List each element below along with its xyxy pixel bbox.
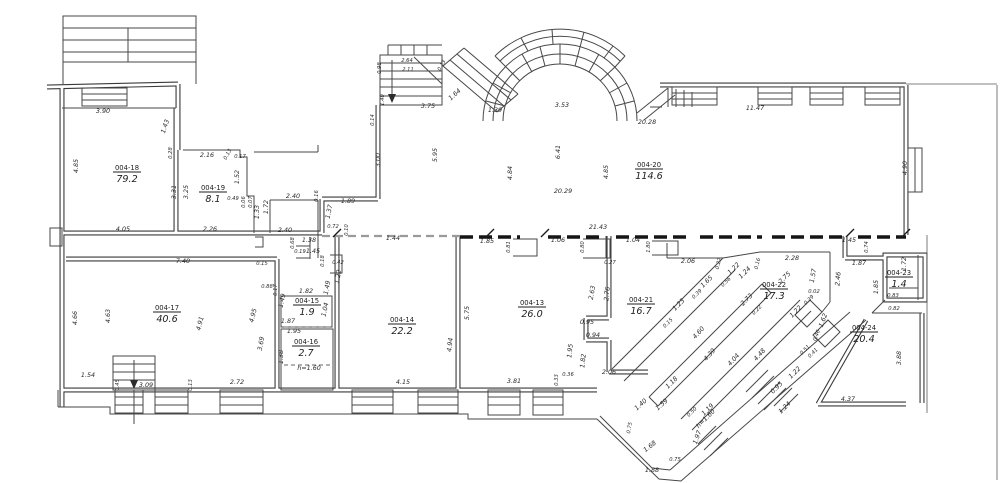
- dimension-label: 3.88: [895, 351, 903, 365]
- dimension-label: 1.37: [324, 204, 335, 220]
- dimension-label: 3.81: [507, 377, 521, 385]
- dimension-label: 0.27: [604, 260, 616, 266]
- room-area: 1.9: [299, 307, 314, 318]
- dimension-label: 1.89: [341, 197, 355, 205]
- dimension-label: 2.76: [602, 286, 611, 301]
- dimension-label: 1.57: [808, 268, 818, 283]
- dimension-label: 1.44: [386, 234, 400, 242]
- dimension-label: 0.72: [327, 224, 339, 230]
- dimension-label: 1.40: [633, 397, 649, 412]
- room-area: 114.6: [635, 171, 662, 182]
- room-code: 004-14: [390, 316, 414, 324]
- dimension-label: 3.90: [96, 107, 110, 115]
- floor-plan-drawing: 004-1879.2004-198.1004-20114.6004-1740.6…: [0, 0, 1000, 483]
- room-label: 004-151.9: [293, 297, 321, 318]
- dimension-label: 1.43: [159, 118, 171, 134]
- dimension-label: 0.33: [554, 374, 560, 386]
- dimension-label: 0.74: [864, 241, 870, 253]
- dimension-label: 2.06: [602, 368, 616, 376]
- dimension-label: 1.80: [646, 241, 652, 253]
- dimension-label: 0.49: [227, 196, 239, 202]
- dimension-label: 6.41: [554, 145, 562, 159]
- room-label: 004-1422.2: [388, 316, 416, 337]
- room-area: 79.2: [116, 174, 137, 185]
- dimension-label: 4.84: [506, 166, 514, 180]
- dimension-label: 0.42: [332, 260, 344, 266]
- dimension-label: 4.60: [691, 325, 706, 341]
- dimension-label: 4.95: [247, 308, 258, 324]
- room-label: 004-1740.6: [153, 304, 181, 325]
- dimension-label: 2.28: [785, 254, 799, 262]
- dimension-label: 1.22: [788, 304, 804, 320]
- dimension-label: 4.85: [72, 159, 80, 173]
- dimension-label: 7.40: [176, 257, 190, 265]
- dimension-label: 0.98: [377, 62, 383, 74]
- dimension-label: 1.95: [565, 343, 574, 358]
- room-code: 004-20: [637, 161, 661, 169]
- dimension-label: 4.37: [841, 395, 855, 403]
- dimension-label: 1.82: [578, 353, 587, 368]
- dimension-label: 21.43: [589, 223, 607, 231]
- dimension-label: 0.19: [294, 249, 306, 255]
- room-code: 004-16: [294, 338, 318, 346]
- room-code: 004-19: [201, 184, 225, 192]
- room-area: 17.3: [763, 291, 784, 302]
- dimension-label: 4.85: [602, 165, 610, 179]
- room-area: 16.7: [630, 306, 652, 317]
- dimension-label: 0.56: [720, 276, 733, 289]
- dimension-label: 0.95: [580, 318, 594, 326]
- dimension-label: 1.22: [787, 365, 803, 381]
- dimension-label: 0.16: [754, 257, 763, 270]
- dimension-label: 1.65: [699, 274, 715, 290]
- dimension-label: 3.00: [374, 153, 382, 167]
- dimension-label: 0.14: [370, 114, 376, 126]
- dimension-label: 4.05: [116, 225, 130, 233]
- dimension-labels: 3.901.434.850.283.314.052.160.130.171.52…: [71, 58, 909, 474]
- room-area: 1.4: [891, 279, 906, 290]
- dimension-label: 1.04: [320, 302, 331, 318]
- dimension-label: 1.95: [287, 327, 301, 335]
- dimension-label: 1.88: [645, 466, 659, 474]
- dimension-label: 0.94: [586, 331, 600, 339]
- dimension-label: 1.85: [872, 280, 880, 294]
- dimension-label: 1.49: [277, 293, 288, 309]
- dimension-label: 0.10: [344, 224, 350, 236]
- dimension-label: 0.13: [188, 379, 194, 391]
- dimension-label: 4.04: [726, 352, 741, 368]
- dimension-label: 0.17: [234, 154, 246, 160]
- dimension-label: 1.23: [671, 297, 687, 313]
- dimension-label: 0.39: [803, 294, 815, 306]
- dimension-label: 1.59: [654, 397, 670, 412]
- room-code: 004-18: [115, 164, 139, 172]
- dimension-label: 1.82: [299, 287, 313, 295]
- dimension-label: 0.46: [812, 329, 822, 343]
- dimension-label: 3.69: [256, 336, 266, 351]
- dimension-label: 0.18: [320, 255, 326, 267]
- room-area: 2.7: [298, 348, 314, 359]
- room-area: 8.1: [205, 194, 220, 205]
- dimension-label: 3.09: [139, 381, 153, 389]
- dimension-label: 0.80: [580, 241, 586, 253]
- dimension-label: 0.36: [562, 372, 574, 378]
- room-code: 004-15: [295, 297, 319, 305]
- dimension-label: 1.40: [380, 94, 386, 106]
- room-code: 004-17: [155, 304, 179, 312]
- dimension-label: 0.75: [626, 421, 634, 434]
- dimension-label: 1.38: [277, 350, 285, 364]
- dimension-label: 1.18: [664, 375, 680, 391]
- dimension-label: 5.95: [431, 148, 439, 162]
- room-area: 22.2: [391, 326, 412, 337]
- dimension-label: 2.16: [200, 151, 214, 159]
- dimension-label: 1.87: [281, 317, 295, 325]
- dimension-label: 2.26: [203, 225, 217, 233]
- dimension-label: 4.90: [901, 161, 909, 175]
- dimension-label: 0.88: [261, 284, 273, 290]
- dimension-label: 3.53: [555, 101, 569, 109]
- dimension-label: 0.16: [314, 190, 320, 202]
- dimension-label: 0.22: [715, 257, 724, 270]
- dimension-label: 4.91: [194, 316, 205, 332]
- dimension-label: 3.25: [182, 185, 190, 199]
- room-label: 004-2420.4: [850, 324, 878, 345]
- dimension-label: 2.46: [833, 271, 842, 286]
- dimension-label: h=1.60: [297, 364, 321, 372]
- room-label: 004-2116.7: [627, 296, 655, 317]
- room-code: 004-21: [629, 296, 653, 304]
- dimension-label: 20.28: [638, 118, 656, 126]
- dimension-label: 2.40: [278, 226, 292, 234]
- dimension-label: 2.75: [777, 270, 793, 286]
- dimension-label: 0.81: [506, 241, 512, 253]
- marked-walls: [284, 229, 910, 365]
- room-label: 004-198.1: [199, 184, 227, 205]
- dimension-label: 1.45: [306, 247, 320, 255]
- dimension-label: 0.50: [686, 406, 699, 419]
- dimension-label: 2.11: [402, 67, 414, 73]
- room-code: 004-13: [520, 299, 544, 307]
- dimension-label: 0.45: [115, 379, 121, 391]
- dimension-label: 2.64: [401, 58, 413, 64]
- dimension-label: 1.22: [333, 269, 343, 284]
- dimension-label: 4.15: [396, 378, 410, 386]
- dimension-label: 4.48: [752, 347, 767, 363]
- walls-inner-faces: [47, 84, 925, 407]
- dimension-label: 2.72: [230, 378, 244, 386]
- dimension-label: 2.63: [587, 285, 597, 300]
- dimension-label: 2.06: [681, 257, 695, 265]
- dimension-label: 0.22: [751, 304, 763, 316]
- dimension-label: 1.33: [253, 205, 261, 219]
- dimension-label: 0.82: [888, 306, 900, 312]
- dimension-label: 0.75: [669, 457, 681, 463]
- dimension-label: 5.75: [463, 306, 471, 320]
- dimension-label: 1.49: [322, 280, 332, 295]
- dimension-label: 1.64: [447, 87, 463, 102]
- dimension-label: 0.39: [691, 288, 703, 300]
- dimension-label: 0.17: [273, 284, 279, 296]
- dimension-label: 1.72: [900, 257, 908, 271]
- dimension-label: 0.28: [168, 147, 174, 159]
- room-label: 004-2217.3: [760, 281, 788, 302]
- dimension-label: 2.40: [286, 192, 300, 200]
- dimension-label: 1.38: [302, 236, 316, 244]
- dimension-label: 1.72: [262, 200, 270, 214]
- room-label: 004-231.4: [885, 269, 913, 290]
- dimension-label: 0.15: [256, 261, 268, 267]
- room-area: 26.0: [521, 309, 542, 320]
- dimension-label: 1.68: [642, 439, 658, 454]
- dimension-label: 1.52: [233, 170, 241, 184]
- room-code: 004-24: [852, 324, 876, 332]
- room-label: 004-162.7: [292, 338, 320, 359]
- dimension-label: 3.31: [170, 185, 178, 199]
- room-label: 004-1326.0: [518, 299, 546, 320]
- dimension-label: 1.39: [488, 106, 502, 114]
- room-label: 004-20114.6: [635, 161, 663, 182]
- dimension-label: 0.06: [241, 196, 247, 208]
- room-area: 40.6: [156, 314, 177, 325]
- dimension-label: 11.47: [746, 104, 764, 112]
- room-label: 004-1879.2: [113, 164, 141, 185]
- dimension-label: 1.04: [626, 236, 640, 244]
- dimension-label: 0.15: [662, 317, 675, 330]
- dimension-label: 3.75: [421, 102, 435, 110]
- dimension-label: 4.63: [104, 309, 112, 323]
- dimension-label: 20.29: [554, 187, 572, 195]
- dimension-label: 4.94: [445, 337, 454, 352]
- dimension-label: 1.06: [551, 236, 565, 244]
- dimension-label: 0.83: [887, 293, 899, 299]
- dimension-label: 1.85: [480, 237, 494, 245]
- dimension-label: 4.66: [71, 311, 79, 325]
- dimension-label: 0.13: [437, 59, 448, 72]
- dimension-label: 1.87: [852, 259, 866, 267]
- dimension-label: 0.68: [290, 237, 296, 249]
- floor-plan-canvas: 004-1879.2004-198.1004-20114.6004-1740.6…: [0, 0, 1000, 483]
- dimension-label: 1.45: [842, 236, 856, 244]
- room-area: 20.4: [853, 334, 874, 345]
- stair-down-arrow-icon: [388, 94, 396, 103]
- dimension-label: 1.54: [81, 371, 95, 379]
